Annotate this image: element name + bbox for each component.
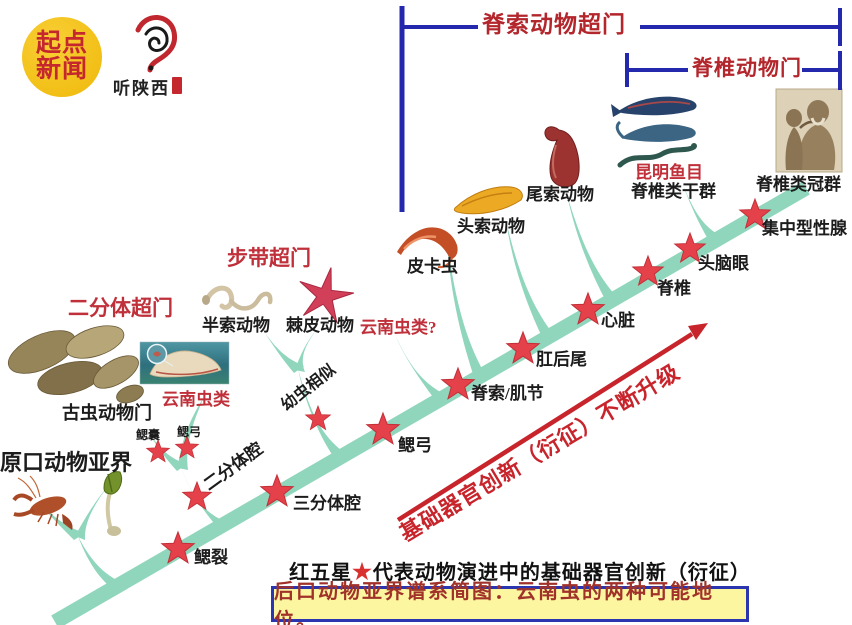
- label-gill-pouch: 鳃囊: [136, 429, 160, 442]
- qidian-logo-line1: 起点: [36, 31, 88, 57]
- seedling-organism-image: [104, 472, 122, 536]
- label-cephalochordate: 头索动物: [457, 218, 525, 236]
- label-myllokunmingiida: 昆明鱼目: [635, 164, 703, 182]
- vetulicolia-fossil-image: [2, 319, 146, 406]
- diagram-title-box: 后口动物亚界谱系简图：云南虫的两种可能地位。: [271, 586, 749, 622]
- label-gill-arch: 鳃弓: [398, 437, 432, 455]
- label-yunnanozoa: 云南虫类: [162, 391, 230, 409]
- label-yunnanozoa-alt: 云南虫类?: [360, 319, 437, 337]
- label-notochord-myomere: 脊索/肌节: [471, 385, 544, 403]
- tunicate-image: [545, 127, 579, 187]
- label-heart: 心脏: [601, 312, 635, 330]
- label-ambulacraria-superphylum: 步带超门: [227, 247, 311, 269]
- qidian-logo-line2: 新闻: [36, 57, 88, 83]
- ear-logo-icon: [138, 17, 175, 70]
- ear-logo-seal: [172, 77, 182, 94]
- label-vertebra: 脊椎: [657, 280, 691, 298]
- label-hemichordate: 半索动物: [202, 317, 270, 335]
- branch-protostome-stem: [78, 536, 123, 589]
- label-vertebrate-crown: 脊椎类冠群: [756, 176, 841, 194]
- ear-logo-label: 听陕西: [113, 74, 170, 99]
- label-concentrated-gonad: 集中型性腺: [762, 220, 847, 238]
- lancelet-image: [454, 187, 522, 214]
- star-gill-pouch: [147, 440, 170, 462]
- branch-urochordate: [567, 195, 617, 303]
- label-protostomia: 原口动物亚界: [0, 451, 132, 474]
- label-urochordate: 尾索动物: [526, 186, 594, 204]
- label-vetulicolia: 古虫动物门: [62, 404, 152, 423]
- label-gill-arch-branch: 鳃弓: [177, 426, 201, 439]
- label-pikaia: 皮卡虫: [407, 258, 458, 276]
- phylogeny-diagram: 起点 新闻 听陕西 脊索动物超门 脊椎动物门 原口动物亚界 二分体超门 古虫动物…: [0, 0, 852, 625]
- branch-protostome-right: [75, 486, 108, 540]
- diagram-title-text: 后口动物亚界谱系简图：云南虫的两种可能地位。: [274, 575, 746, 625]
- label-three-part-coelom: 三分体腔: [293, 495, 361, 513]
- vertebrate-phylum-title: 脊椎动物门: [692, 57, 802, 79]
- label-vertebrate-stem: 脊椎类干群: [631, 183, 716, 201]
- label-postanal-tail: 肛后尾: [536, 351, 587, 369]
- branch-yunnanozoa-alt: [395, 335, 446, 401]
- branch-echinoderm: [295, 329, 317, 372]
- chordate-superphylum-title: 脊索动物超门: [482, 13, 626, 37]
- qidian-news-logo: 起点 新闻: [22, 17, 102, 97]
- vertebrate-crown-image: [776, 89, 842, 172]
- arrowhead-icon: [688, 323, 708, 340]
- label-head-brain-eye: 头脑眼: [698, 255, 749, 273]
- crayfish-image: [14, 476, 73, 530]
- label-gill-slits: 鳃裂: [194, 549, 228, 567]
- acorn-worm-image: [202, 288, 270, 308]
- label-vetulicolia-superphylum: 二分体超门: [68, 297, 173, 319]
- label-echinoderm: 棘皮动物: [286, 317, 354, 335]
- yunnanozoon-photo: [140, 342, 229, 384]
- branch-cephalochordate: [506, 221, 554, 341]
- kunming-fish-image: [611, 97, 697, 165]
